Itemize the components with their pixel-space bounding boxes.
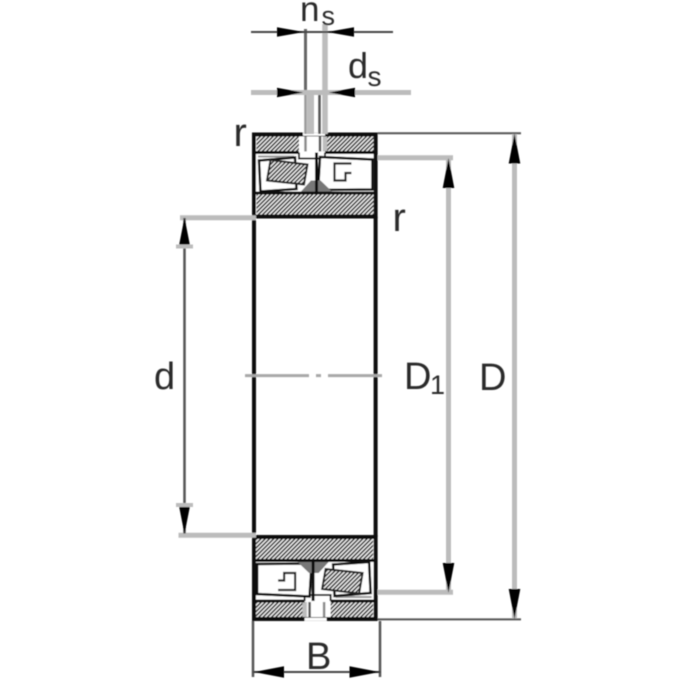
- svg-text:n: n: [300, 0, 319, 29]
- svg-text:1: 1: [430, 370, 445, 400]
- svg-text:B: B: [306, 636, 331, 678]
- svg-text:s: s: [368, 61, 382, 92]
- svg-text:r: r: [393, 196, 406, 240]
- svg-text:r: r: [234, 111, 247, 155]
- svg-text:D: D: [404, 356, 431, 398]
- svg-text:d: d: [348, 45, 368, 86]
- svg-text:D: D: [479, 357, 506, 399]
- svg-text:d: d: [154, 356, 175, 398]
- svg-text:s: s: [322, 1, 336, 31]
